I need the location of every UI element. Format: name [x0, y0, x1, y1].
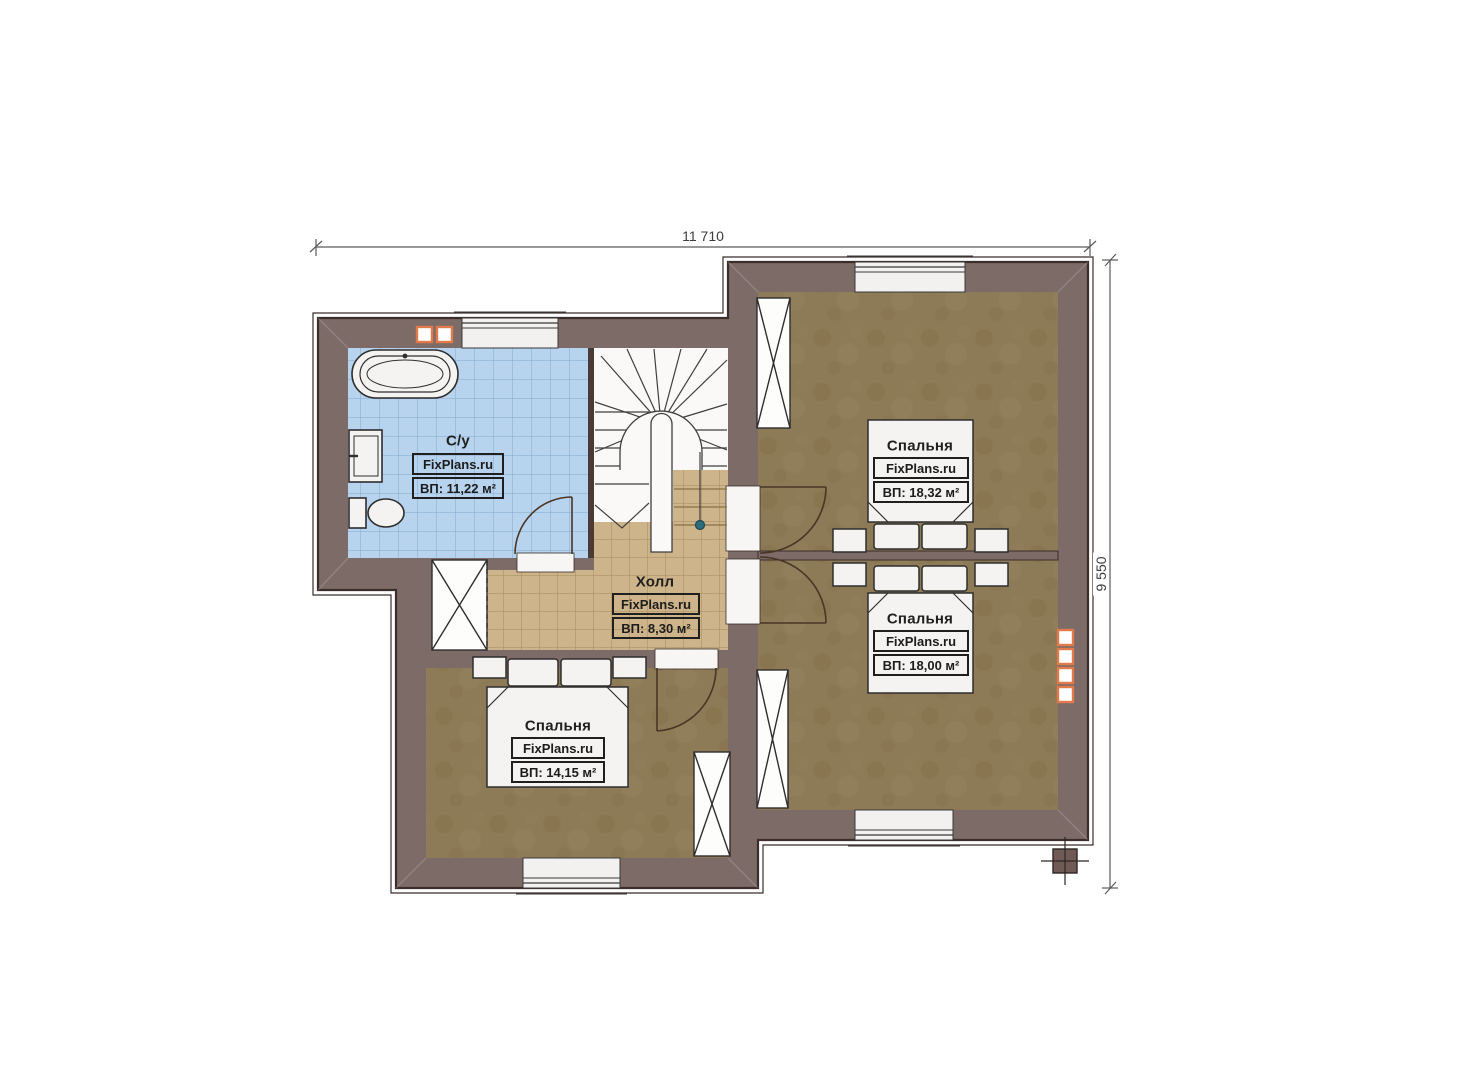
chimney-symbol [1041, 837, 1089, 885]
bedroom-right-top-name: Спальня [887, 438, 953, 455]
bedroom-right-top-area: ВП: 18,32 м² [873, 481, 969, 503]
shaft-hall-left [432, 560, 487, 650]
bathroom-area: ВП: 11,22 м² [412, 477, 504, 499]
hall-brand: FixPlans.ru [612, 593, 700, 615]
dimension-right-label: 9 550 [1093, 552, 1109, 595]
dimension-top-label: 11 710 [678, 228, 728, 244]
bathtub [352, 350, 458, 398]
hall-name: Холл [636, 574, 674, 591]
bedroom-left-bottom-area: ВП: 14,15 м² [511, 761, 605, 783]
bedroom-left-bottom-brand: FixPlans.ru [511, 737, 605, 759]
toilet [349, 498, 404, 528]
bedroom-right-bottom-area: ВП: 18,00 м² [873, 654, 969, 676]
bedroom-right-bottom-brand: FixPlans.ru [873, 630, 969, 652]
stair-spine [651, 414, 672, 552]
bedroom-right-bottom-name: Спальня [887, 611, 953, 628]
building [313, 256, 1093, 894]
sink [349, 430, 382, 482]
shaft-right-top [757, 298, 790, 428]
hall-area: ВП: 8,30 м² [612, 617, 700, 639]
shaft-left-bedroom [694, 752, 730, 856]
bedroom-left-bottom-name: Спальня [525, 718, 591, 735]
bathroom-brand: FixPlans.ru [412, 453, 504, 475]
bedroom-right-top-brand: FixPlans.ru [873, 457, 969, 479]
floor-plan-page: 11 710 9 550 С/у FixPlans.ru ВП: 11,22 м… [0, 0, 1473, 1080]
shaft-right-bottom [757, 670, 788, 808]
newel-post [696, 521, 705, 530]
floor-plan-drawing [0, 0, 1473, 1080]
bathroom-stair-partition [588, 348, 594, 558]
dividing-wall [758, 551, 1058, 560]
bathroom-name: С/у [446, 433, 470, 450]
